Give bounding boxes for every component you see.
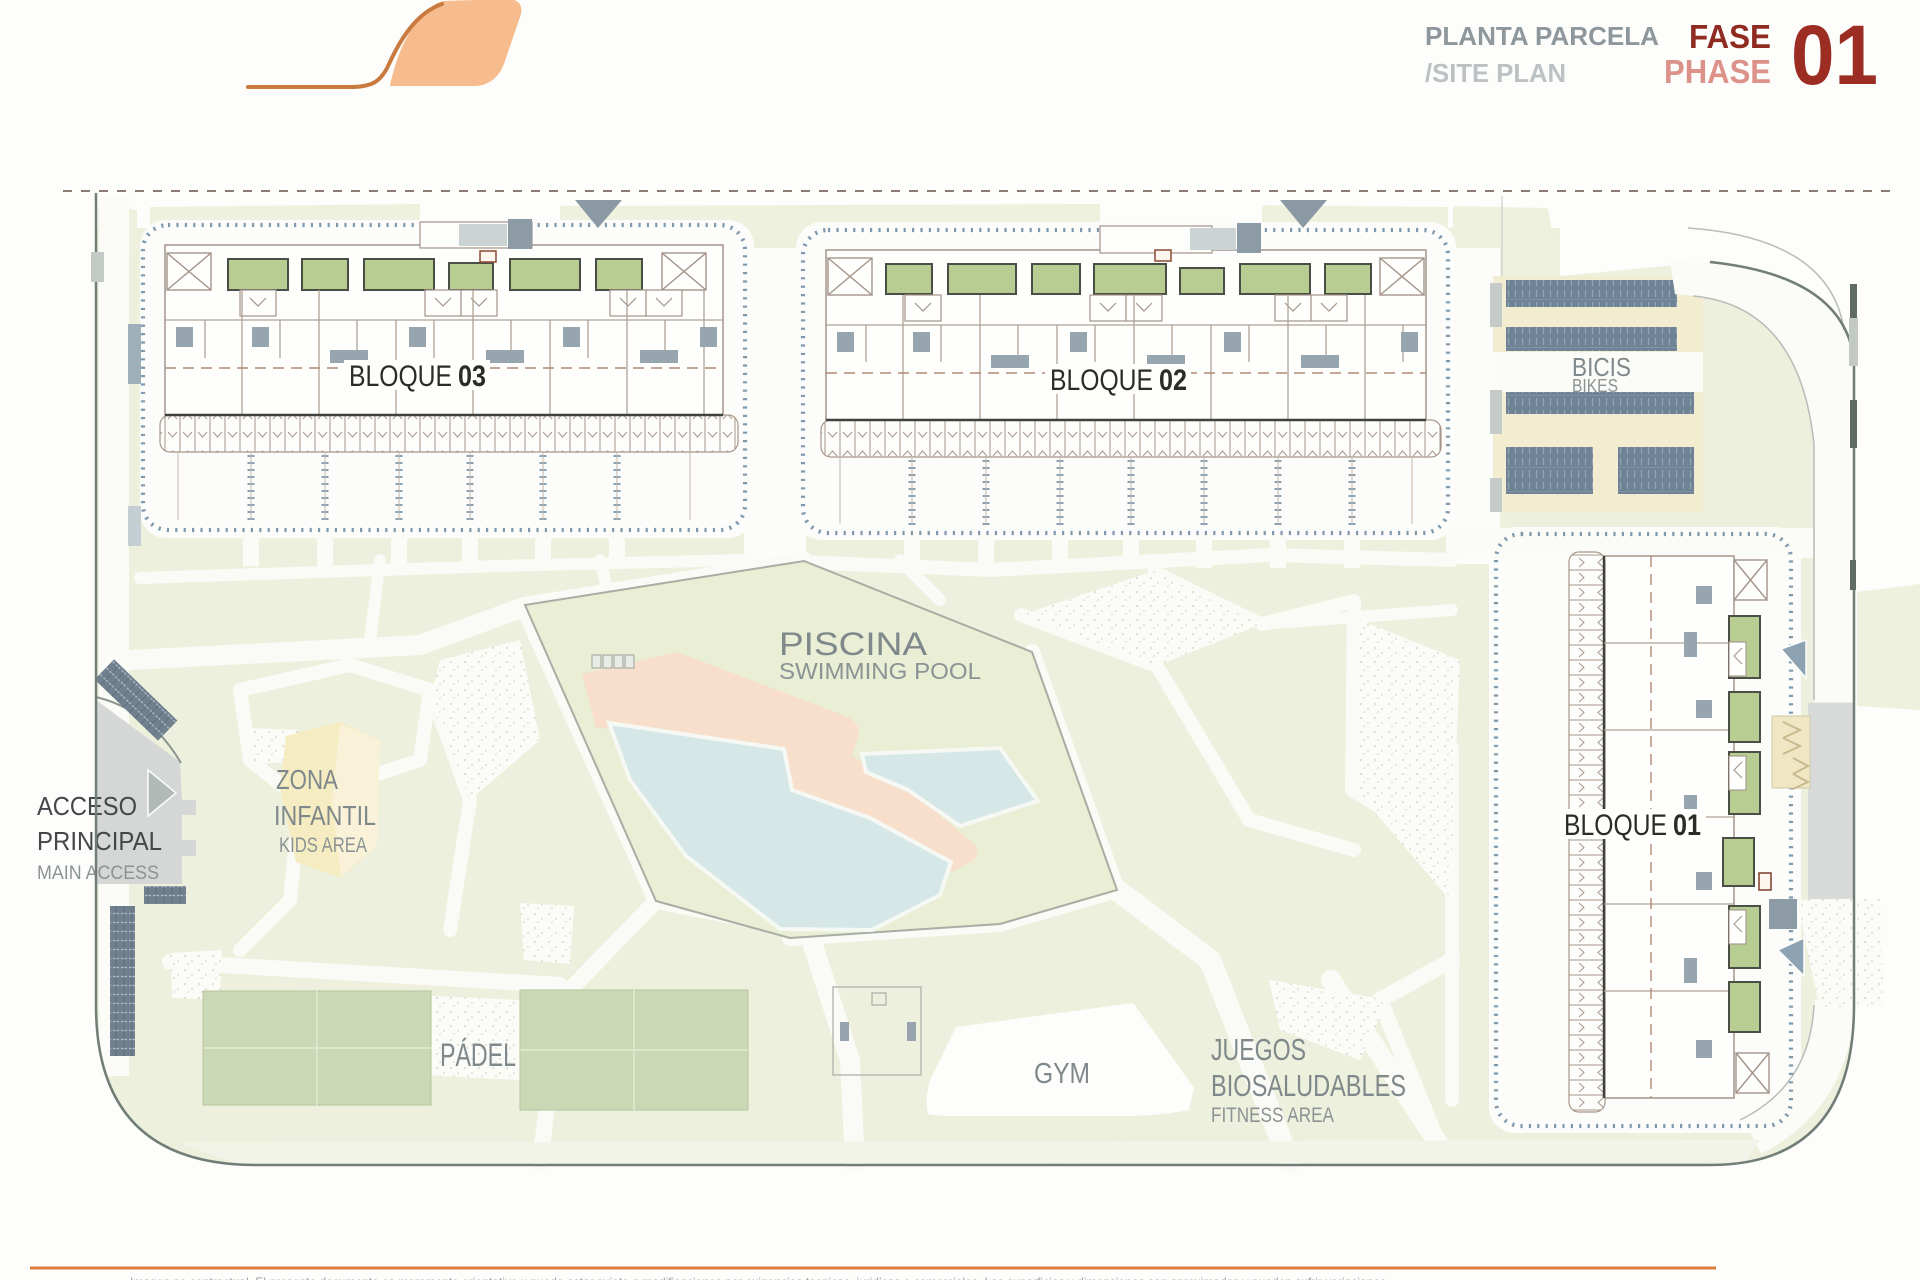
svg-text:JUEGOS: JUEGOS xyxy=(1211,1032,1306,1067)
svg-text:FITNESS AREA: FITNESS AREA xyxy=(1211,1104,1334,1127)
svg-text:PLANTA PARCELA: PLANTA PARCELA xyxy=(1425,21,1659,51)
svg-text:SWIMMING POOL: SWIMMING POOL xyxy=(779,658,981,684)
svg-text:ZONA: ZONA xyxy=(276,764,338,795)
svg-text:GYM: GYM xyxy=(1034,1058,1090,1090)
svg-text:MAIN ACCESS: MAIN ACCESS xyxy=(37,863,159,884)
svg-text:01: 01 xyxy=(1673,809,1701,842)
svg-text:02: 02 xyxy=(1159,364,1187,397)
svg-text:01: 01 xyxy=(1791,8,1878,102)
svg-text:PÁDEL: PÁDEL xyxy=(440,1037,516,1073)
svg-text:KIDS AREA: KIDS AREA xyxy=(279,834,367,857)
svg-text:PRINCIPAL: PRINCIPAL xyxy=(37,826,162,856)
svg-text:BLOQUE: BLOQUE xyxy=(1050,364,1153,397)
svg-text:BIOSALUDABLES: BIOSALUDABLES xyxy=(1211,1068,1406,1103)
svg-text:ACCESO: ACCESO xyxy=(37,791,137,821)
svg-text:FASE: FASE xyxy=(1689,18,1771,55)
svg-text:Imagen no contractual. El pres: Imagen no contractual. El presente docum… xyxy=(130,1275,1389,1280)
svg-text:BIKES: BIKES xyxy=(1572,376,1618,396)
svg-text:BLOQUE: BLOQUE xyxy=(349,360,452,393)
svg-text:PISCINA: PISCINA xyxy=(779,626,928,662)
svg-text:/SITE PLAN: /SITE PLAN xyxy=(1425,58,1566,88)
svg-text:PHASE: PHASE xyxy=(1664,53,1771,90)
svg-text:BLOQUE: BLOQUE xyxy=(1564,809,1667,842)
svg-text:03: 03 xyxy=(458,360,486,393)
svg-text:INFANTIL: INFANTIL xyxy=(274,800,376,831)
